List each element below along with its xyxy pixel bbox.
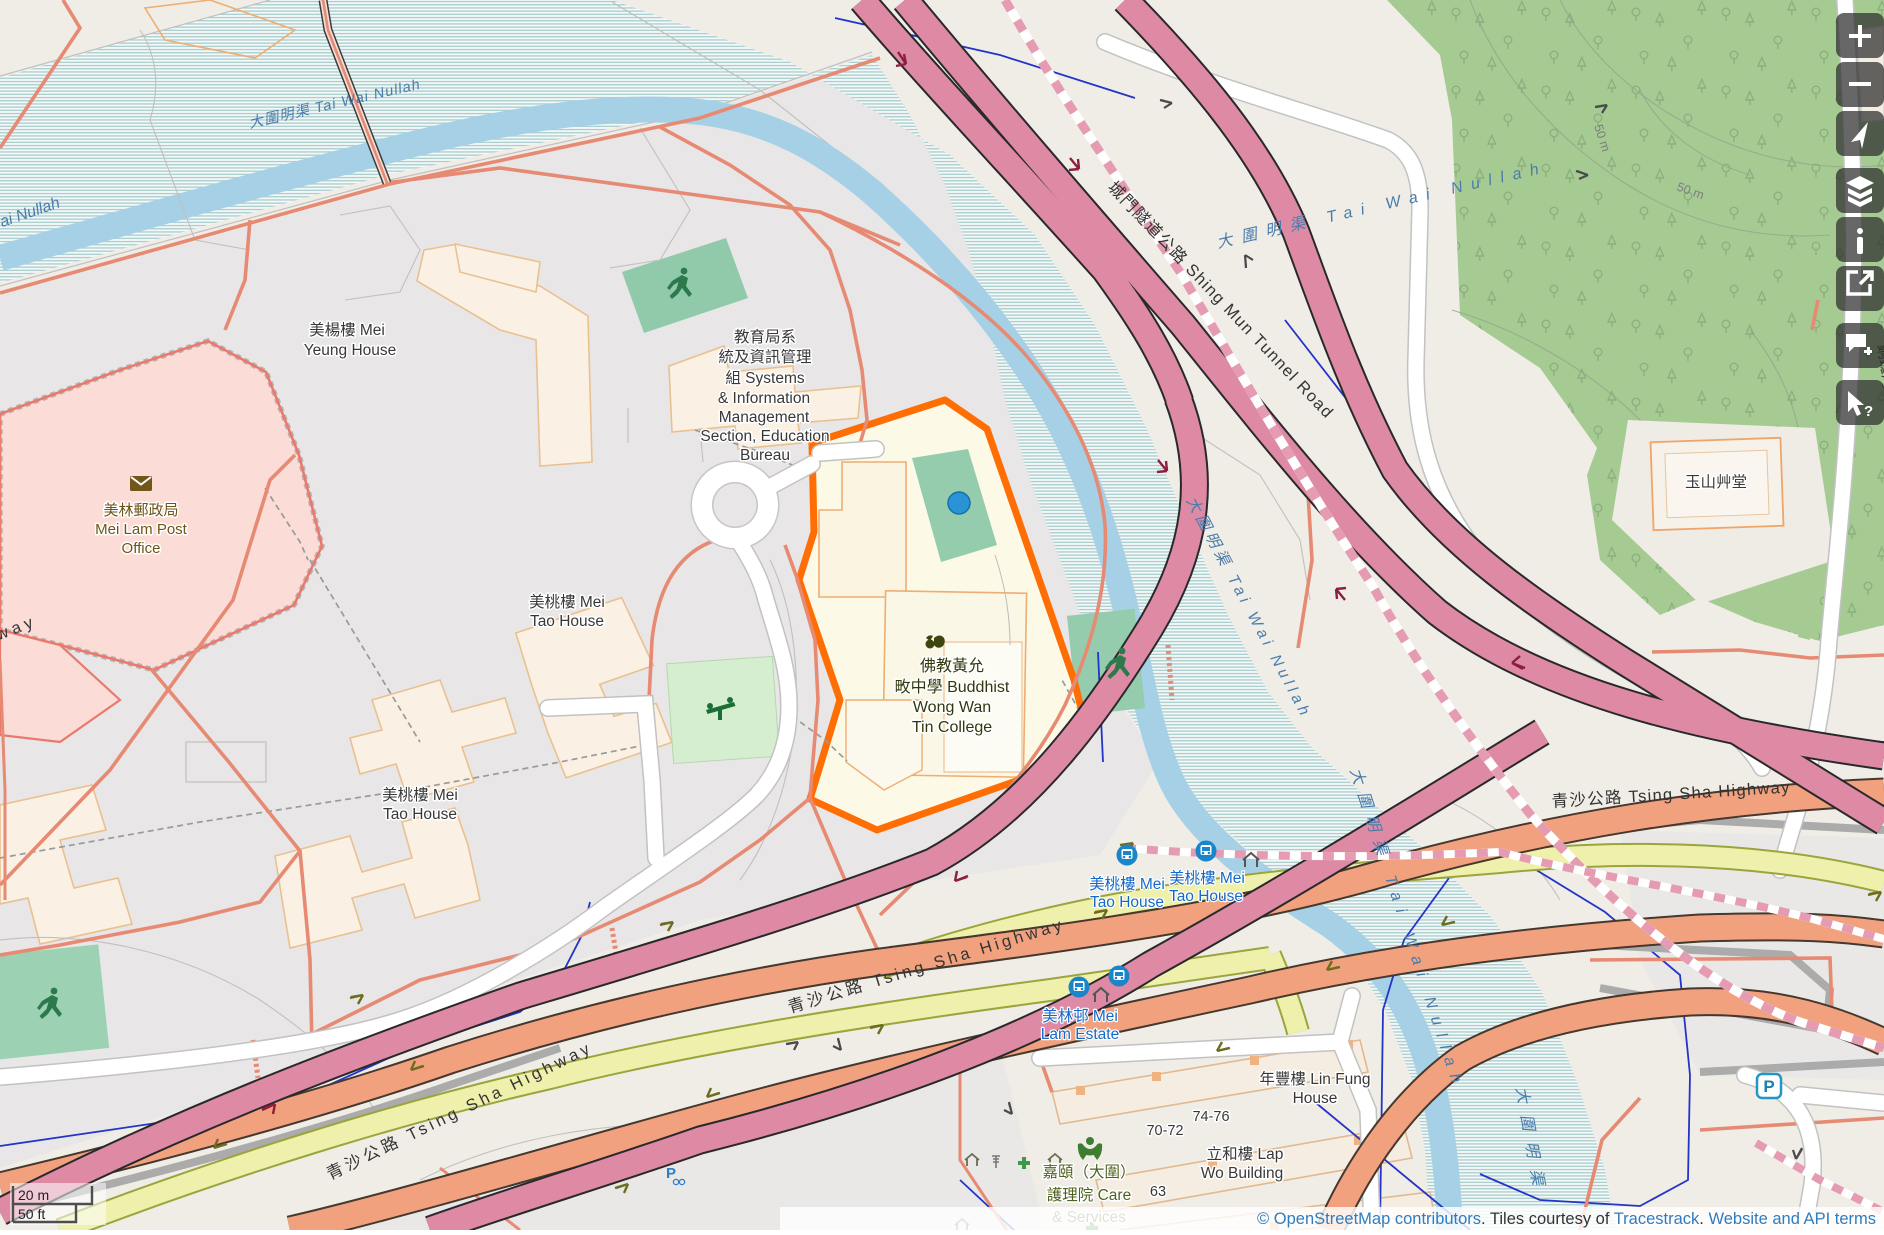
svg-text:美林邨 Mei: 美林邨 Mei: [1042, 1007, 1118, 1025]
svg-text:Wong Wan: Wong Wan: [913, 699, 991, 716]
svg-text:Wo Building: Wo Building: [1201, 1165, 1283, 1182]
svg-text:House: House: [1293, 1090, 1338, 1107]
svg-text:立和樓 Lap: 立和樓 Lap: [1207, 1145, 1284, 1163]
svg-text:教育局系: 教育局系: [734, 328, 796, 346]
svg-text:© OpenStreetMap contributors.: © OpenStreetMap contributors. Tiles cour…: [1257, 1210, 1876, 1228]
svg-text:玉山艸堂: 玉山艸堂: [1685, 473, 1747, 491]
svg-text:Section, Education: Section, Education: [700, 428, 829, 445]
svg-text:畋中學 Buddhist: 畋中學 Buddhist: [895, 678, 1010, 696]
svg-text:Mei Lam Post: Mei Lam Post: [95, 521, 188, 538]
svg-text:Tao House: Tao House: [1090, 894, 1164, 911]
svg-text:Management: Management: [719, 409, 810, 426]
svg-text:?: ?: [1864, 403, 1873, 420]
svg-text:50 ft: 50 ft: [18, 1206, 45, 1222]
svg-text:74-76: 74-76: [1192, 1109, 1229, 1125]
svg-text:20 m: 20 m: [18, 1187, 49, 1203]
svg-text:嘉頤（大圍）: 嘉頤（大圍）: [1042, 1163, 1135, 1181]
svg-text:美林郵政局: 美林郵政局: [103, 502, 178, 519]
svg-text:& Information: & Information: [718, 390, 810, 407]
svg-text:Tao House: Tao House: [383, 806, 457, 823]
svg-text:美桃樓 Mei: 美桃樓 Mei: [529, 593, 605, 611]
svg-text:佛教黃允: 佛教黃允: [920, 657, 984, 675]
svg-text:護理院 Care: 護理院 Care: [1047, 1185, 1131, 1204]
svg-text:年豐樓 Lin Fung: 年豐樓 Lin Fung: [1259, 1070, 1370, 1088]
svg-text:美桃樓 Mei: 美桃樓 Mei: [1089, 875, 1165, 893]
svg-text:美桃樓 Mei: 美桃樓 Mei: [1169, 869, 1245, 887]
svg-text:70-72: 70-72: [1146, 1123, 1183, 1139]
svg-text:統及資訊管理: 統及資訊管理: [718, 348, 811, 366]
svg-text:Tao House: Tao House: [1169, 888, 1243, 905]
svg-text:Tin College: Tin College: [912, 719, 992, 736]
svg-text:Lam Estate: Lam Estate: [1041, 1026, 1119, 1043]
svg-text:美楊樓 Mei: 美楊樓 Mei: [309, 321, 385, 339]
svg-text:美桃樓 Mei: 美桃樓 Mei: [382, 786, 458, 804]
svg-text:組 Systems: 組 Systems: [725, 369, 804, 387]
svg-text:63: 63: [1150, 1184, 1166, 1200]
svg-text:Bureau: Bureau: [740, 447, 790, 464]
svg-text:Tao House: Tao House: [530, 613, 604, 630]
svg-text:Yeung House: Yeung House: [304, 342, 397, 359]
svg-text:Office: Office: [122, 540, 161, 557]
svg-text:P: P: [1763, 1077, 1774, 1096]
